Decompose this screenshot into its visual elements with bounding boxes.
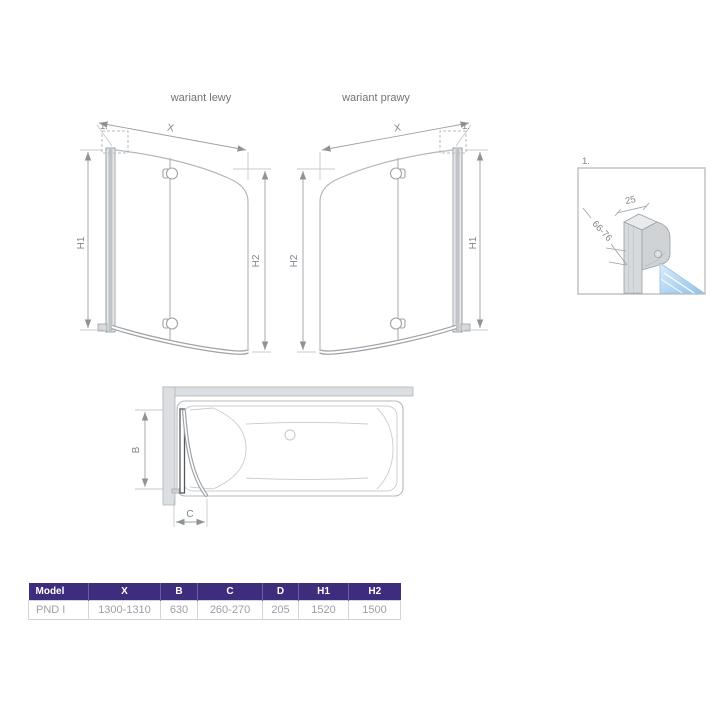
variant-right-title: wariant prawy xyxy=(341,92,410,104)
col-header-c: C xyxy=(198,583,263,601)
cell-x: 1300-1310 xyxy=(89,601,161,620)
spec-table-header-row: Model X B C D H1 H2 xyxy=(29,583,401,601)
dim-h1-label-left: H1 xyxy=(76,236,87,249)
spec-table-row: PND I 1300-1310 630 260-270 205 1520 150… xyxy=(29,601,401,620)
spec-table: Model X B C D H1 H2 PND I 1300-1310 630 … xyxy=(28,583,401,620)
dim-h2-label-left: H2 xyxy=(251,254,262,267)
col-header-model: Model xyxy=(29,583,89,601)
cell-b: 630 xyxy=(161,601,198,620)
plan-wall-left xyxy=(163,387,175,505)
plan-wall-top xyxy=(163,387,413,396)
cell-c: 260-270 xyxy=(198,601,263,620)
cell-h2: 1500 xyxy=(349,601,401,620)
detail-ref-label-right: 1. xyxy=(462,121,470,132)
col-header-d: D xyxy=(263,583,299,601)
detail-ref-label-left: 1. xyxy=(100,121,108,132)
detail-view: 1. 25 66-76 xyxy=(578,156,705,294)
col-header-h2: H2 xyxy=(349,583,401,601)
cell-d: 205 xyxy=(263,601,299,620)
dim-c-label: C xyxy=(186,509,193,520)
dim-h2-label-right: H2 xyxy=(289,254,300,267)
plan-view: B C xyxy=(131,387,413,527)
plan-bathtub xyxy=(177,401,403,496)
col-header-b: B xyxy=(161,583,198,601)
variant-right-drawing: wariant prawy 1. X H1 H2 xyxy=(289,92,488,353)
detail-dim-25-label: 25 xyxy=(624,194,637,207)
cell-model: PND I xyxy=(29,601,89,620)
dim-x-label-left: X xyxy=(166,123,175,135)
variant-left-drawing: wariant lewy 1. X H1 H2 xyxy=(76,92,271,353)
col-header-h1: H1 xyxy=(299,583,349,601)
dim-x-label-right: X xyxy=(393,122,402,134)
col-header-x: X xyxy=(89,583,161,601)
dim-h1-label-right: H1 xyxy=(468,236,479,249)
cell-h1: 1520 xyxy=(299,601,349,620)
variant-left-title: wariant lewy xyxy=(170,92,232,104)
technical-drawing-page: wariant lewy 1. X H1 H2 wariant prawy 1.… xyxy=(0,0,720,720)
dim-b-label: B xyxy=(131,446,142,453)
plan-drain xyxy=(285,430,295,440)
detail-view-ref-label: 1. xyxy=(582,156,590,167)
